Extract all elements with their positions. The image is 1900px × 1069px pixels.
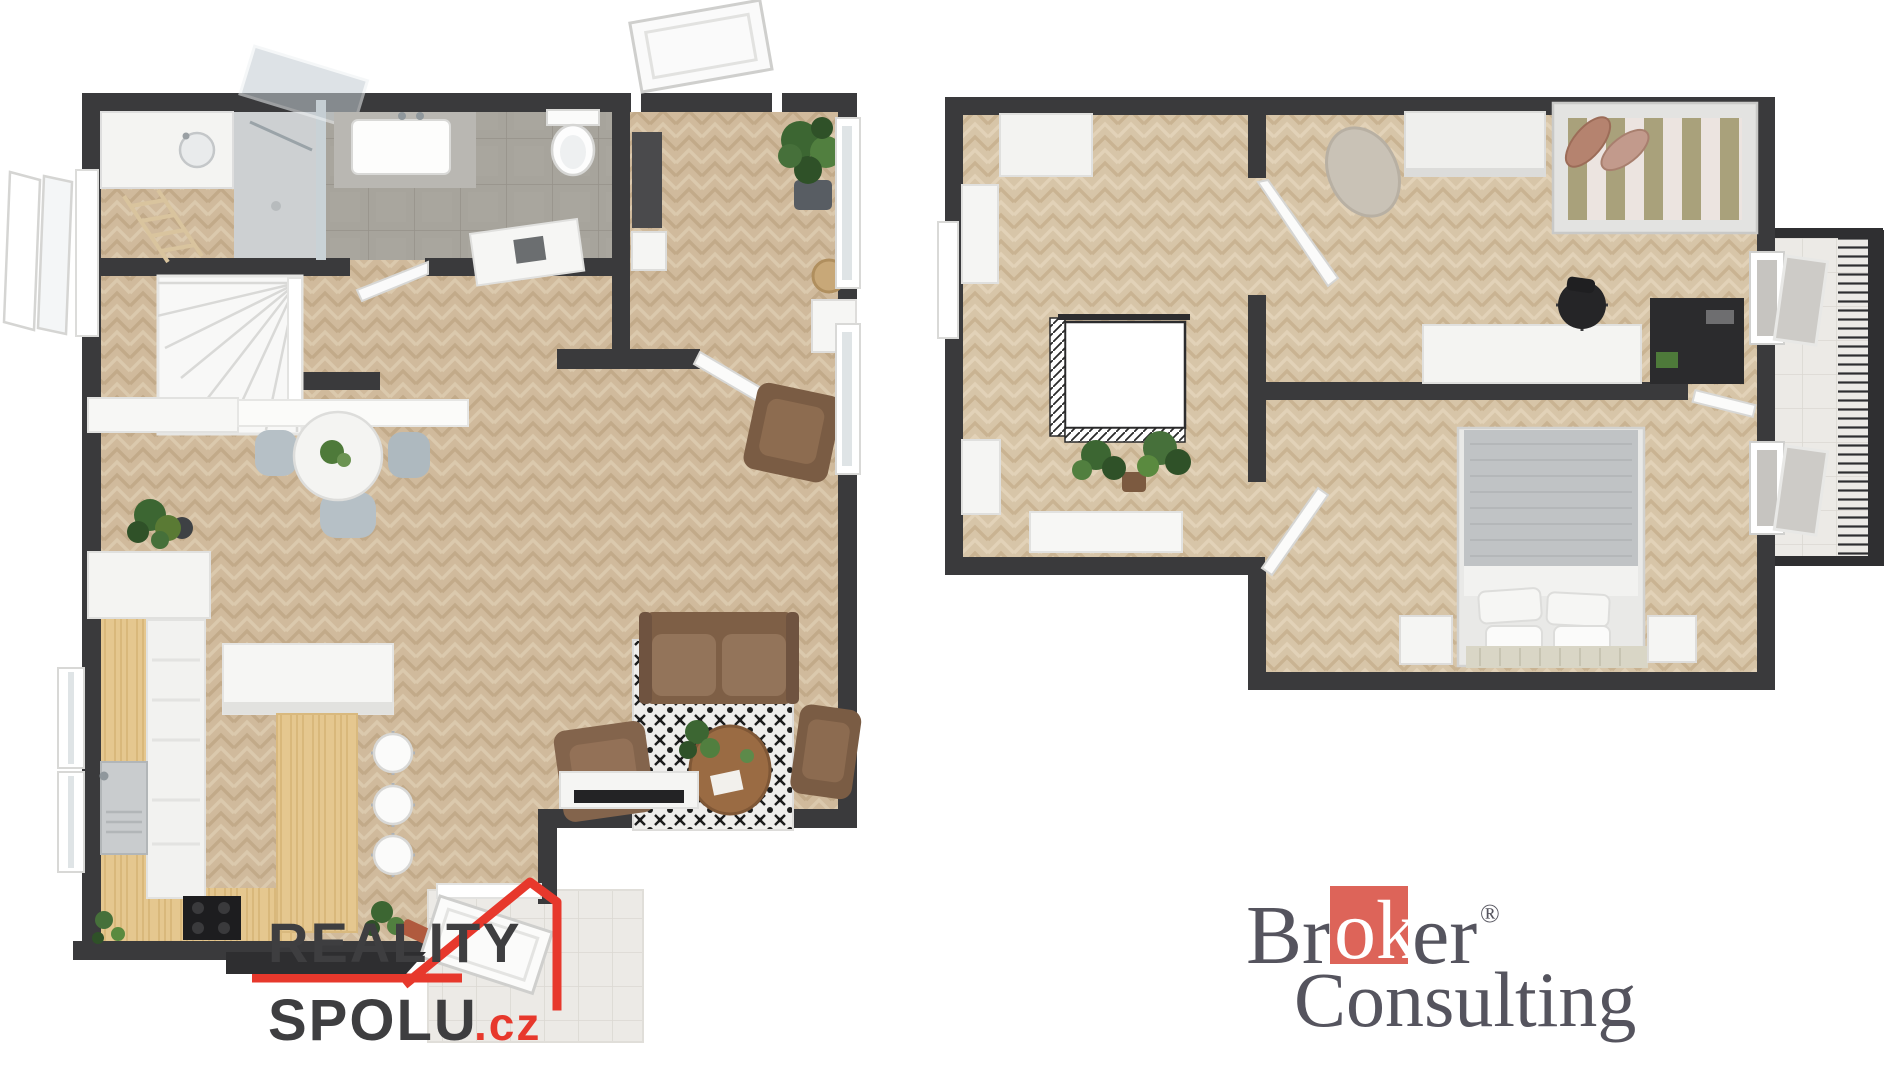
dining-chair-right	[388, 432, 430, 478]
railing-frame	[1868, 230, 1884, 566]
spolu-tld: .cz	[474, 998, 541, 1050]
dining-chair-left	[255, 430, 297, 476]
island-base	[277, 714, 357, 932]
upper-cabinets	[88, 552, 210, 618]
open-window-leaf-1	[4, 172, 40, 330]
balcony-window-2	[1750, 442, 1828, 535]
broker-consulting-logo: Br ok er ® Consulting	[1246, 884, 1636, 1043]
bar-stools	[371, 731, 415, 877]
desk	[1423, 325, 1641, 383]
toilet-tank	[547, 110, 599, 125]
wall-kids-master	[1266, 382, 1688, 400]
entry-wardrobe	[632, 132, 662, 228]
wall-bath-entry	[612, 100, 630, 349]
tall-cabinet-run	[147, 620, 205, 898]
low-cabinet	[962, 440, 1000, 514]
shower-tray	[234, 100, 318, 262]
wardrobe-top	[1000, 114, 1092, 176]
nightstand-left	[1400, 616, 1452, 664]
cooktop	[183, 896, 241, 940]
entry-bench	[632, 232, 666, 270]
open-window-leaf-2	[38, 176, 72, 334]
registered-mark: ®	[1480, 899, 1500, 928]
upper-floor-plan	[938, 97, 1884, 690]
floor-plan-page: REALITY SPOLU .cz Br ok er ® Consulting	[0, 0, 1900, 1069]
floor-plan-rendering: REALITY SPOLU .cz Br ok er ® Consulting	[0, 0, 1900, 1069]
tv	[574, 790, 684, 803]
kids-wardrobe	[1405, 112, 1545, 176]
ground-floor-plan	[4, 0, 863, 1042]
wall-hall-living	[557, 349, 700, 369]
balcony-window-1	[1750, 252, 1828, 345]
wall-top-rooms-left	[93, 258, 350, 276]
railing-bars	[1838, 238, 1870, 558]
reality-word: REALITY	[268, 911, 522, 974]
double-bed	[1458, 428, 1648, 668]
spolu-word: SPOLU	[268, 988, 478, 1053]
sideboard	[1030, 512, 1182, 552]
single-bed-striped	[1553, 103, 1757, 233]
nightstand-right	[1648, 616, 1696, 662]
armchair-right	[789, 703, 863, 801]
armchair-top	[741, 381, 843, 485]
consulting-word: Consulting	[1294, 956, 1636, 1043]
front-door-open	[630, 0, 772, 92]
wall-sideboard	[88, 398, 238, 432]
tall-cabinet	[962, 185, 998, 283]
sofa	[639, 612, 799, 704]
vanity-sink	[352, 120, 450, 174]
left-window	[938, 222, 958, 338]
shower-glass-side	[316, 100, 326, 260]
